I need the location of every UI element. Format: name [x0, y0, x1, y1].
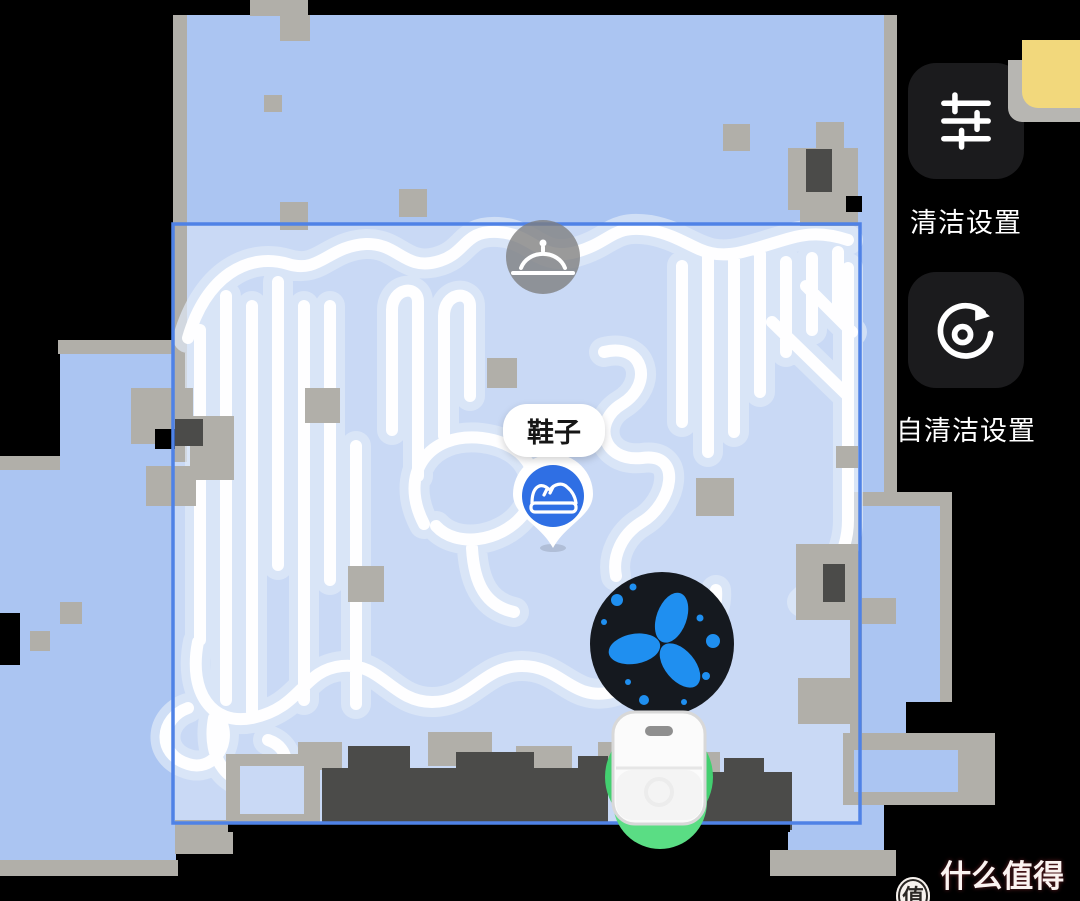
zone-label[interactable]: 鞋子 — [503, 404, 605, 457]
yellow-note-corner — [1022, 40, 1080, 108]
watermark-text: 什么值得买 — [940, 851, 1080, 901]
clean-settings-label: 清洁设置 — [886, 201, 1046, 240]
cloche-marker[interactable] — [506, 220, 580, 294]
watermark-badge: 值 — [896, 877, 930, 901]
self-clean-settings-label: 自清洁设置 — [869, 409, 1063, 448]
cloche-marker-disc — [506, 220, 580, 294]
robot-marker[interactable] — [605, 712, 713, 849]
robot-vacuum-map-screen: 鞋子 清洁设置 自清洁设置 值 什么值得买 — [0, 0, 1080, 901]
self-clean-settings-button[interactable] — [908, 272, 1024, 388]
sliders-icon — [935, 90, 997, 152]
robot-vacuum-icon — [613, 712, 705, 824]
clean-settings-button[interactable] — [908, 63, 1024, 179]
site-watermark: 值 什么值得买 — [896, 851, 1080, 901]
spray-status-marker[interactable] — [590, 572, 734, 716]
self-clean-rotate-icon — [934, 298, 998, 362]
